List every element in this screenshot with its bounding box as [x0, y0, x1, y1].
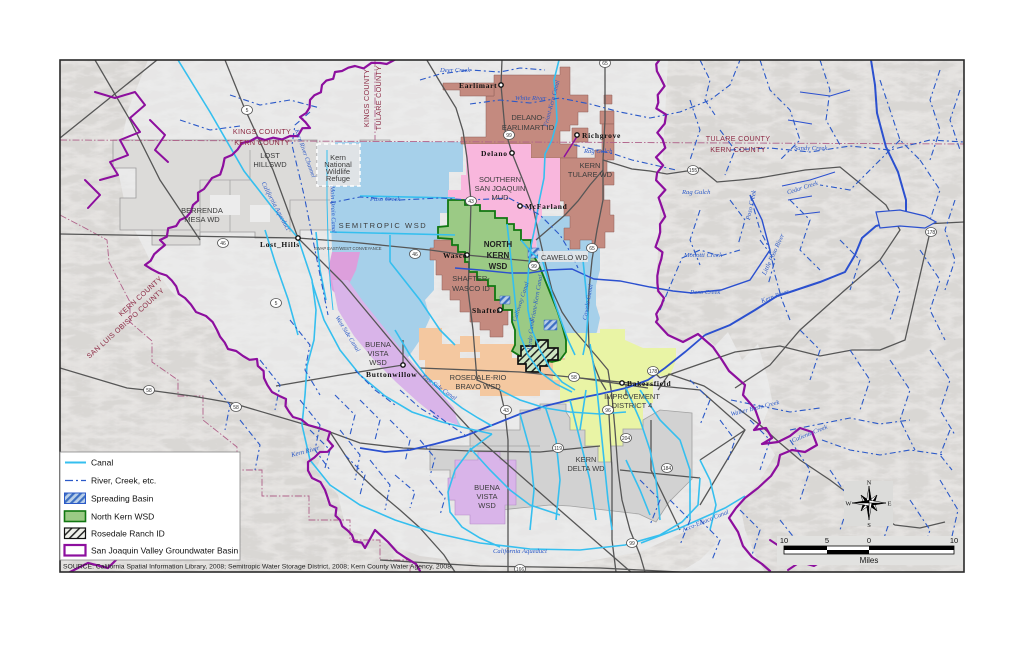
svg-text:204: 204 [622, 436, 631, 442]
svg-text:KINGS COUNTY: KINGS COUNTY [362, 69, 371, 127]
svg-text:Earlimart: Earlimart [459, 81, 497, 90]
svg-text:Richgrove: Richgrove [582, 131, 621, 140]
svg-text:KERN: KERN [576, 455, 597, 464]
svg-text:65: 65 [589, 246, 595, 252]
svg-text:46: 46 [220, 241, 226, 247]
svg-text:Rosedale Ranch ID: Rosedale Ranch ID [91, 529, 165, 539]
svg-text:KERN: KERN [487, 251, 510, 260]
svg-text:SWAP EAST/WEST CONVEYANCE: SWAP EAST/WEST CONVEYANCE [314, 246, 382, 251]
svg-text:TULARE WD: TULARE WD [568, 170, 613, 179]
svg-text:10: 10 [780, 536, 788, 545]
svg-text:TULARE COUNTY: TULARE COUNTY [374, 66, 383, 131]
svg-text:CAWELO WD: CAWELO WD [541, 253, 588, 262]
svg-text:5: 5 [246, 108, 249, 114]
svg-text:46: 46 [412, 252, 418, 258]
svg-text:WASCO ID: WASCO ID [452, 284, 490, 293]
svg-text:River, Creek, etc.: River, Creek, etc. [91, 476, 156, 486]
svg-text:VISTA: VISTA [367, 349, 388, 358]
svg-text:WSD: WSD [369, 358, 387, 367]
svg-text:178: 178 [927, 230, 936, 236]
svg-text:ROSEDALE-RIO: ROSEDALE-RIO [450, 373, 507, 382]
svg-text:North Kern WSD: North Kern WSD [91, 512, 154, 522]
svg-text:DELTA WD: DELTA WD [567, 464, 605, 473]
svg-text:TULARE COUNTY: TULARE COUNTY [706, 134, 771, 143]
svg-text:BUENA: BUENA [365, 340, 391, 349]
svg-text:Buttonwillow: Buttonwillow [366, 370, 417, 379]
svg-text:Delano: Delano [481, 149, 508, 158]
svg-text:KERN COUNTY: KERN COUNTY [710, 145, 766, 154]
svg-text:N: N [867, 480, 872, 487]
svg-text:DELANO-: DELANO- [511, 113, 545, 122]
svg-text:99: 99 [531, 264, 537, 270]
svg-text:0: 0 [867, 536, 871, 545]
svg-text:MUD: MUD [491, 193, 509, 202]
svg-text:Lost_Hills: Lost_Hills [260, 240, 300, 249]
svg-text:SAN JOAQUIN: SAN JOAQUIN [475, 184, 526, 193]
svg-text:Canal: Canal [91, 458, 113, 468]
svg-text:HILLSWD: HILLSWD [253, 160, 287, 169]
svg-text:Paso Creek: Paso Creek [369, 196, 401, 203]
svg-text:5: 5 [275, 301, 278, 307]
svg-text:KERN: KERN [580, 161, 601, 170]
svg-text:155: 155 [689, 168, 698, 174]
svg-text:Bakersfield: Bakersfield [627, 379, 671, 388]
svg-text:Spreading Basin: Spreading Basin [91, 494, 154, 504]
svg-text:99: 99 [506, 133, 512, 139]
svg-text:LOST: LOST [260, 151, 280, 160]
svg-text:184: 184 [663, 466, 672, 472]
svg-text:SHAFTER-: SHAFTER- [452, 274, 490, 283]
svg-text:Poso Creek: Poso Creek [689, 289, 721, 296]
svg-text:W: W [845, 501, 852, 508]
svg-text:S: S [867, 522, 871, 529]
svg-text:Miles: Miles [860, 556, 879, 565]
svg-text:MESA WD: MESA WD [184, 215, 220, 224]
svg-text:58: 58 [571, 375, 577, 381]
svg-text:VISTA: VISTA [476, 492, 497, 501]
svg-text:Sandy Creek: Sandy Creek [794, 145, 828, 152]
svg-text:99: 99 [629, 541, 635, 547]
svg-text:WSD: WSD [489, 262, 508, 271]
svg-text:Shafter: Shafter [472, 306, 501, 315]
svg-text:SOURCE: California Spatial Inf: SOURCE: California Spatial Information L… [63, 564, 453, 571]
svg-text:Refuge: Refuge [326, 174, 350, 183]
svg-text:KINGS COUNTY: KINGS COUNTY [233, 127, 291, 136]
svg-text:BERRENDA: BERRENDA [181, 206, 223, 215]
svg-text:DISTRICT 4: DISTRICT 4 [612, 401, 653, 410]
svg-text:McFarland: McFarland [525, 202, 568, 211]
svg-text:California Aqueduct: California Aqueduct [493, 548, 547, 555]
svg-text:E: E [888, 501, 892, 508]
svg-text:IMPROVEMENT: IMPROVEMENT [604, 392, 660, 401]
svg-text:65: 65 [602, 61, 608, 67]
svg-text:KERN COUNTY: KERN COUNTY [234, 138, 290, 147]
svg-text:96: 96 [605, 408, 611, 414]
svg-text:Rag Gulch: Rag Gulch [583, 148, 613, 155]
svg-text:WSD: WSD [478, 501, 496, 510]
svg-text:43: 43 [468, 199, 474, 205]
svg-text:5: 5 [825, 536, 829, 545]
svg-text:178: 178 [649, 369, 658, 375]
svg-text:Wasco: Wasco [443, 251, 467, 260]
svg-text:White River: White River [515, 95, 547, 102]
svg-text:43: 43 [503, 408, 509, 414]
svg-text:BRAVO WSD: BRAVO WSD [455, 382, 501, 391]
svg-text:San Joaquin Valley Groundwater: San Joaquin Valley Groundwater Basin [91, 546, 239, 556]
svg-text:119: 119 [554, 446, 562, 452]
svg-text:SOUTHERN: SOUTHERN [479, 175, 521, 184]
svg-text:58: 58 [233, 405, 239, 411]
svg-text:Rag Gulch: Rag Gulch [681, 189, 711, 196]
svg-text:58: 58 [146, 388, 152, 394]
svg-text:10: 10 [950, 536, 958, 545]
svg-text:BUENA: BUENA [474, 483, 500, 492]
svg-text:NORTH: NORTH [484, 240, 513, 249]
svg-text:Deer Creek: Deer Creek [439, 67, 471, 74]
svg-text:SEMITROPIC WSD: SEMITROPIC WSD [339, 221, 428, 230]
svg-text:Monotti Creek: Monotti Creek [683, 252, 723, 259]
